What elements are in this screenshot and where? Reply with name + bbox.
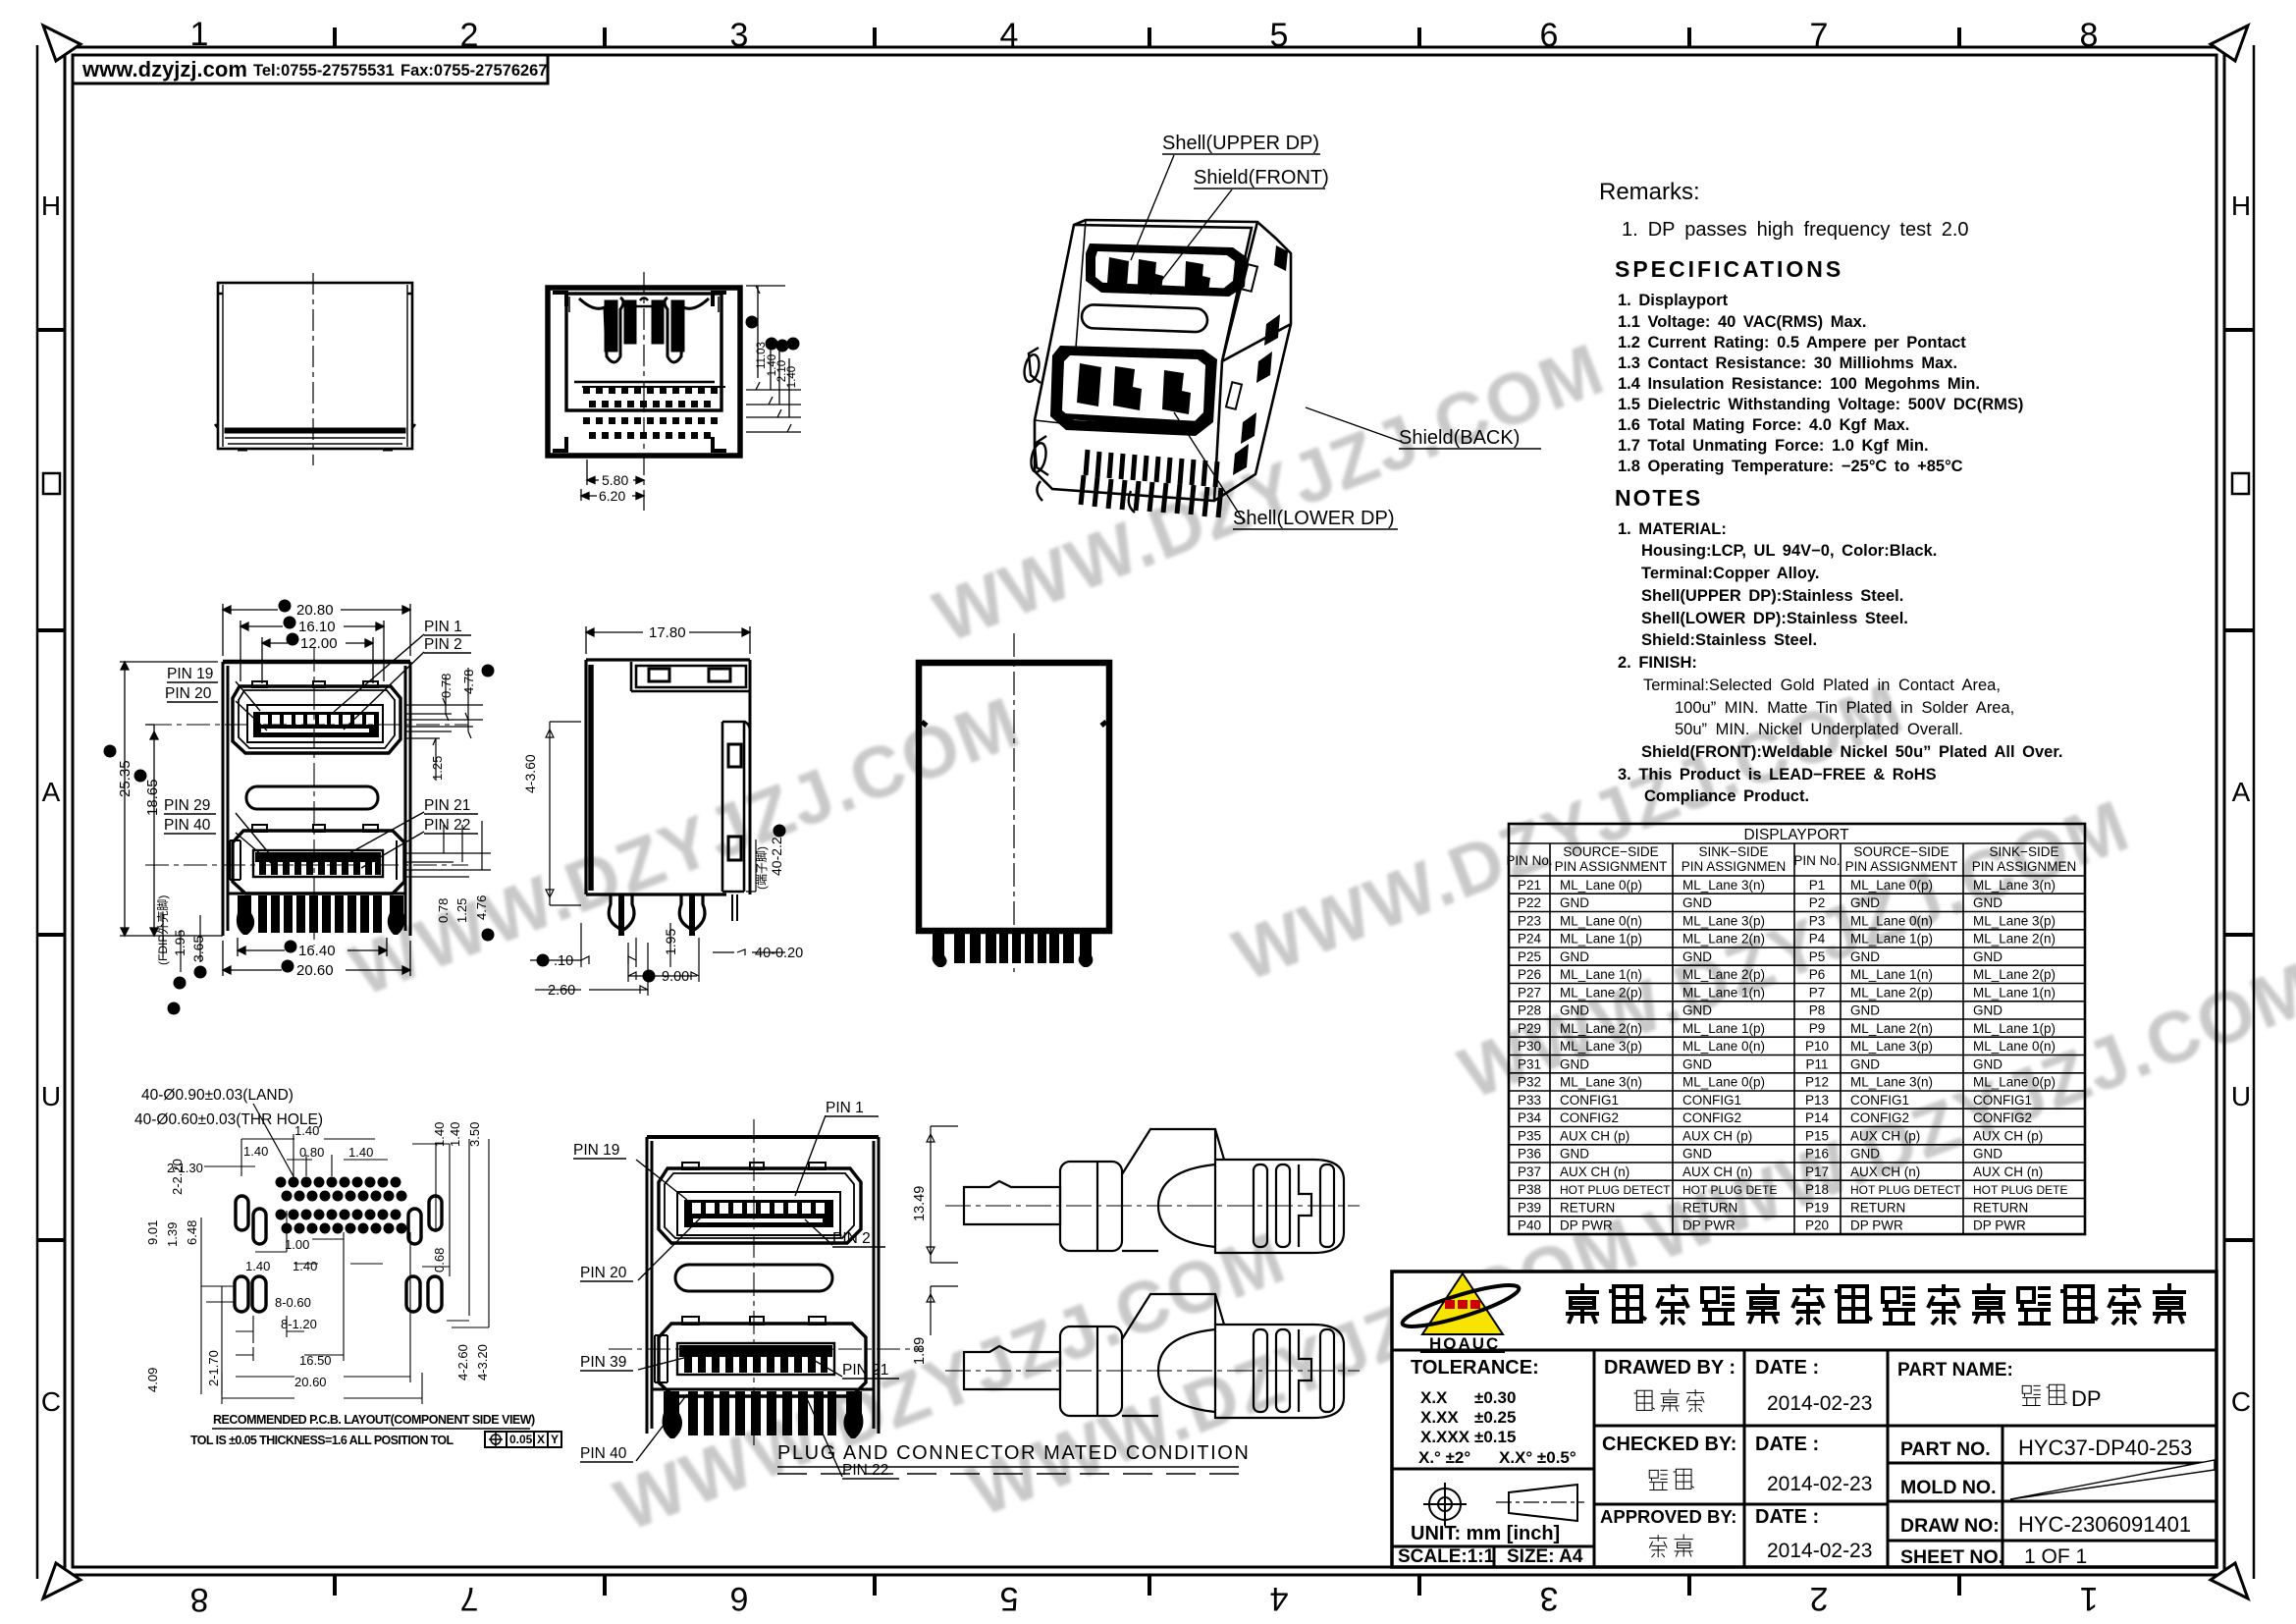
svg-text:H: H [2231,190,2251,221]
svg-text:3: 3 [730,17,749,54]
svg-text:20.60: 20.60 [296,962,334,979]
svg-text:0.80: 0.80 [299,1145,324,1160]
svg-text:1.40: 1.40 [432,1122,447,1147]
svg-text:X.XX: X.XX [1420,1408,1459,1427]
svg-text:ML_Lane 2(n): ML_Lane 2(n) [1682,932,1765,947]
svg-text:ML_Lane 1(p): ML_Lane 1(p) [1850,932,1933,947]
svg-text:PART NAME:: PART NAME: [1897,1360,2013,1380]
svg-text:1.8 Operating Temperature: −25: 1.8 Operating Temperature: −25°C to +85°… [1618,458,1963,475]
svg-text:P31: P31 [1518,1056,1541,1071]
svg-text:AUX CH (p): AUX CH (p) [1560,1128,1629,1143]
svg-text:Y: Y [551,1433,559,1446]
svg-text:P28: P28 [1518,1003,1541,1018]
svg-text:PIN ASSIGNMENT: PIN ASSIGNMENT [1845,859,1958,874]
svg-text:ML_Lane 2(p): ML_Lane 2(p) [1850,985,1933,1000]
svg-text:GND: GND [1850,1003,1880,1018]
svg-text:ML_Lane 0(p): ML_Lane 0(p) [1682,1075,1765,1090]
svg-text:1.40: 1.40 [294,1123,319,1138]
svg-text:ML_Lane 1(n): ML_Lane 1(n) [1973,985,2056,1000]
svg-text:SPECIFICATIONS: SPECIFICATIONS [1615,256,1843,282]
svg-text:ML_Lane 3(p): ML_Lane 3(p) [1560,1039,1642,1054]
svg-text:CONFIG1: CONFIG1 [1560,1093,1619,1108]
svg-text:17.80: 17.80 [649,624,686,641]
svg-text:P37: P37 [1518,1164,1541,1179]
svg-text:40-Ø0.90±0.03(LAND): 40-Ø0.90±0.03(LAND) [141,1087,294,1104]
svg-text:2. FINISH:: 2. FINISH: [1618,654,1697,672]
svg-text:8-1.20: 8-1.20 [281,1317,317,1331]
svg-text:ML_Lane 2(n): ML_Lane 2(n) [1560,1021,1642,1036]
svg-text:NOTES: NOTES [1615,485,1702,511]
svg-text:X.XXX: X.XXX [1420,1428,1470,1446]
svg-text:DATE :: DATE : [1755,1434,1819,1455]
svg-text:1.40: 1.40 [243,1144,268,1159]
svg-text:7: 7 [1810,17,1829,54]
svg-text:PIN No.: PIN No. [1506,853,1552,868]
svg-text:ML_Lane 1(n): ML_Lane 1(n) [1560,967,1642,982]
svg-text:1: 1 [190,16,209,53]
svg-text:1.1 Voltage: 40 VAC(RMS) Max.: 1.1 Voltage: 40 VAC(RMS) Max. [1618,313,1866,331]
svg-text:PIN 22: PIN 22 [842,1462,888,1479]
svg-text:100u” MIN. Matte Tin Plated in: 100u” MIN. Matte Tin Plated in Solder Ar… [1675,699,2014,717]
svg-text:2014-02-23: 2014-02-23 [1767,1540,1872,1562]
svg-text:1.89: 1.89 [912,1337,928,1365]
svg-text:GND: GND [1850,1147,1880,1162]
svg-text:UNIT: mm [inch]: UNIT: mm [inch] [1411,1523,1560,1544]
svg-text:P22: P22 [1518,895,1541,910]
svg-text:AUX CH (n): AUX CH (n) [1973,1164,2043,1179]
svg-text:1.00: 1.00 [285,1237,309,1252]
svg-text:P19: P19 [1805,1200,1829,1215]
svg-text:16.10: 16.10 [298,619,336,635]
svg-text:P13: P13 [1805,1093,1829,1108]
svg-text:DP: DP [2071,1386,2102,1411]
svg-text:GND: GND [1973,895,2002,910]
svg-text:Terminal:Selected Gold Plated: Terminal:Selected Gold Plated in Contact… [1643,677,2001,694]
svg-text:P20: P20 [1805,1218,1829,1233]
svg-text:H: H [41,190,61,221]
svg-text:P38: P38 [1518,1182,1541,1197]
svg-text:DP PWR: DP PWR [1682,1218,1735,1233]
svg-text:GND: GND [1560,895,1589,910]
svg-text:Terminal:Copper Alloy.: Terminal:Copper Alloy. [1641,565,1819,582]
svg-text:1.40: 1.40 [448,1122,462,1147]
svg-text:AUX CH (n): AUX CH (n) [1682,1164,1752,1179]
svg-text:DP PWR: DP PWR [1973,1218,2026,1233]
svg-text:GND: GND [1682,1056,1712,1071]
svg-text:DP PWR: DP PWR [1560,1218,1613,1233]
svg-text:1.95: 1.95 [172,930,187,956]
svg-text:1. MATERIAL:: 1. MATERIAL: [1618,520,1727,538]
svg-text:GND: GND [1560,1147,1589,1162]
svg-text:6.48: 6.48 [185,1220,199,1245]
svg-text:ML_Lane 0(n): ML_Lane 0(n) [1560,913,1642,928]
svg-text:3: 3 [1540,1580,1559,1617]
svg-text:Shield(BACK): Shield(BACK) [1399,427,1520,449]
svg-text:4: 4 [1270,1580,1289,1617]
svg-text:Shell(LOWER DP): Shell(LOWER DP) [1233,508,1394,529]
svg-text:PIN 2: PIN 2 [832,1230,871,1247]
svg-text:GND: GND [1682,1003,1712,1018]
svg-text:MOLD NO.: MOLD NO. [1900,1477,1997,1498]
svg-text:TOLERANCE:: TOLERANCE: [1411,1357,1539,1379]
svg-text:1.3 Contact Resistance: 30 Mil: 1.3 Contact Resistance: 30 Milliohms Max… [1618,354,1957,372]
svg-text:Shield:Stainless Steel.: Shield:Stainless Steel. [1641,631,1817,649]
svg-text:1.6 Total Mating Force: 4.0 Kg: 1.6 Total Mating Force: 4.0 Kgf Max. [1618,416,1909,434]
svg-text:www.dzyjzj.com: www.dzyjzj.com [81,57,247,81]
svg-text:ML_Lane 3(n): ML_Lane 3(n) [1850,1075,1933,1090]
svg-text:2: 2 [460,17,479,54]
svg-text:ML_Lane 2(n): ML_Lane 2(n) [1850,1021,1933,1036]
svg-text:P15: P15 [1805,1128,1829,1143]
svg-text:ML_Lane 0(n): ML_Lane 0(n) [1973,1039,2056,1054]
svg-text:5: 5 [1270,17,1289,54]
svg-text:DP PWR: DP PWR [1850,1218,1903,1233]
svg-text:Shield(FRONT):Weldable Nickel: Shield(FRONT):Weldable Nickel 50u” Plate… [1641,743,2062,761]
svg-text:ML_Lane 3(p): ML_Lane 3(p) [1682,913,1765,928]
svg-text:PIN 2: PIN 2 [424,636,462,653]
svg-text:SIZE: A4: SIZE: A4 [1507,1546,1583,1567]
svg-text:9.00: 9.00 [662,969,689,985]
svg-text:1.25: 1.25 [430,756,445,781]
svg-text:ML_Lane 3(n): ML_Lane 3(n) [1682,878,1765,893]
svg-text:ML_Lane 0(p): ML_Lane 0(p) [1560,878,1642,893]
svg-text:5.80: 5.80 [602,472,628,488]
svg-text:P34: P34 [1518,1110,1542,1125]
svg-text:DRAWED BY :: DRAWED BY : [1604,1357,1735,1379]
svg-text:X: X [537,1433,545,1446]
svg-text:4-3.60: 4-3.60 [522,754,538,793]
svg-text:4.78: 4.78 [461,670,476,694]
svg-text:CONFIG2: CONFIG2 [1850,1110,1909,1125]
svg-text:ML_Lane 1(p): ML_Lane 1(p) [1560,932,1642,947]
svg-text:2.60: 2.60 [548,983,575,999]
svg-text:U: U [41,1081,61,1111]
svg-text:PIN 1: PIN 1 [826,1100,864,1116]
svg-text:50u” MIN. Nickel Underplated O: 50u” MIN. Nickel Underplated Overall. [1675,721,1963,738]
svg-text:6: 6 [730,1580,749,1617]
svg-text:GND: GND [1682,949,1712,964]
svg-text:GND: GND [1560,1003,1589,1018]
svg-text:1.40: 1.40 [245,1259,270,1273]
svg-text:PIN 29: PIN 29 [164,797,210,814]
svg-text:P14: P14 [1805,1110,1830,1125]
svg-text:2014-02-23: 2014-02-23 [1767,1392,1872,1415]
svg-text:1.39: 1.39 [165,1222,180,1247]
svg-text:0.05: 0.05 [509,1433,533,1446]
svg-text:DISPLAYPORT: DISPLAYPORT [1743,827,1849,843]
svg-text:SOURCE−SIDE: SOURCE−SIDE [1563,844,1658,859]
svg-text:HYC37-DP40-253: HYC37-DP40-253 [2018,1435,2192,1460]
svg-text:P7: P7 [1809,985,1826,1000]
svg-text:P24: P24 [1518,932,1542,947]
svg-text:1.95: 1.95 [663,929,678,955]
svg-text:Shell(UPPER DP):Stainless Stee: Shell(UPPER DP):Stainless Steel. [1641,587,1903,605]
svg-text:C: C [41,1386,61,1417]
svg-text:DATE :: DATE : [1755,1506,1819,1528]
svg-text:Housing:LCP, UL 94V−0, Color:B: Housing:LCP, UL 94V−0, Color:Black. [1641,542,1937,560]
svg-text:P6: P6 [1809,967,1826,982]
svg-text:X.X° ±0.5°: X.X° ±0.5° [1499,1448,1576,1467]
svg-text:1.40: 1.40 [786,366,798,388]
svg-text:PIN 40: PIN 40 [580,1445,627,1462]
svg-text:P2: P2 [1809,895,1826,910]
svg-text:PIN ASSIGNMEN: PIN ASSIGNMEN [1972,859,2077,874]
svg-text:AUX CH (p): AUX CH (p) [1850,1128,1920,1143]
svg-text:TOL IS ±0.05 THICKNESS=1.6 ALL: TOL IS ±0.05 THICKNESS=1.6 ALL POSITION … [190,1434,454,1447]
svg-text:8-0.60: 8-0.60 [275,1295,311,1310]
svg-text:ML_Lane 0(n): ML_Lane 0(n) [1850,913,1933,928]
svg-text:PIN 1: PIN 1 [424,619,462,635]
svg-text:PIN 19: PIN 19 [167,666,213,682]
svg-text:1.40: 1.40 [348,1145,373,1160]
svg-text:1.25: 1.25 [454,898,469,923]
svg-text:RETURN: RETURN [1850,1200,1905,1215]
svg-text:±0.15: ±0.15 [1474,1428,1516,1446]
svg-text:SCALE:1:1: SCALE:1:1 [1398,1546,1495,1567]
svg-text:3.50: 3.50 [467,1122,482,1147]
svg-text:2014-02-23: 2014-02-23 [1767,1473,1872,1495]
svg-text:GND: GND [1850,1056,1880,1071]
svg-text:25.35: 25.35 [117,760,133,797]
svg-text:ML_Lane 0(n): ML_Lane 0(n) [1682,1039,1765,1054]
svg-text:P9: P9 [1809,1021,1826,1036]
svg-text:Fax:0755-27576267: Fax:0755-27576267 [400,62,548,80]
svg-text:A: A [42,777,61,807]
svg-text:3. This Product is LEAD−FREE &: 3. This Product is LEAD−FREE & RoHS [1618,766,1937,784]
svg-text:Shell(UPPER DP): Shell(UPPER DP) [1162,133,1319,154]
svg-text:GND: GND [1682,1147,1712,1162]
svg-text:P40: P40 [1518,1218,1541,1233]
svg-text:SINK−SIDE: SINK−SIDE [1990,844,2059,859]
svg-text:P23: P23 [1518,913,1541,928]
svg-text:8: 8 [190,1581,209,1618]
svg-text:PIN ASSIGNMEN: PIN ASSIGNMEN [1682,859,1787,874]
svg-text:AUX CH (p): AUX CH (p) [1973,1128,2043,1143]
svg-text:ML_Lane 2(p): ML_Lane 2(p) [1682,967,1765,982]
svg-text:HOAUC: HOAUC [1429,1334,1500,1353]
svg-text:P29: P29 [1518,1021,1541,1036]
svg-text:U: U [2231,1081,2251,1111]
svg-text:CONFIG1: CONFIG1 [1850,1093,1909,1108]
svg-text:6: 6 [1540,17,1559,54]
svg-text:P21: P21 [1518,878,1541,893]
svg-text:PIN 20: PIN 20 [580,1265,627,1281]
svg-text:P36: P36 [1518,1147,1541,1162]
svg-text:X.° ±2°: X.° ±2° [1418,1448,1470,1467]
svg-text:2: 2 [1810,1580,1829,1617]
svg-text:HYC-2306091401: HYC-2306091401 [2018,1512,2191,1537]
svg-text:8: 8 [2080,17,2099,54]
svg-text:P33: P33 [1518,1093,1541,1108]
svg-text:6.20: 6.20 [599,488,625,504]
svg-text:.10: .10 [554,953,573,969]
svg-text:RETURN: RETURN [1682,1200,1737,1215]
svg-text:4: 4 [1000,17,1019,54]
svg-text:0.68: 0.68 [432,1248,447,1272]
svg-text:CONFIG1: CONFIG1 [1973,1093,2032,1108]
svg-text:GND: GND [1850,895,1880,910]
svg-text:HOT PLUG DETE: HOT PLUG DETE [1682,1183,1777,1197]
svg-text:Tel:0755-27575531: Tel:0755-27575531 [253,62,395,80]
svg-text:9.01: 9.01 [145,1220,160,1245]
svg-text:1. Displayport: 1. Displayport [1618,292,1729,309]
svg-text:GND: GND [1973,1003,2002,1018]
svg-text:CONFIG1: CONFIG1 [1682,1093,1741,1108]
svg-text:P12: P12 [1805,1075,1829,1090]
svg-text:P32: P32 [1518,1075,1541,1090]
svg-text:CHECKED BY:: CHECKED BY: [1602,1434,1736,1455]
svg-text:Compliance Product.: Compliance Product. [1644,787,1809,805]
svg-text:0.78: 0.78 [436,898,451,923]
svg-text:ML_Lane 1(n): ML_Lane 1(n) [1850,967,1933,982]
svg-text:GND: GND [1682,895,1712,910]
svg-text:PIN 21: PIN 21 [424,797,470,814]
svg-text:SINK−SIDE: SINK−SIDE [1699,844,1769,859]
svg-text:CONFIG2: CONFIG2 [1560,1110,1619,1125]
svg-text:ML_Lane 0(p): ML_Lane 0(p) [1973,1075,2056,1090]
svg-text:5: 5 [1000,1580,1019,1617]
svg-text:12.00: 12.00 [300,635,338,652]
svg-text:20.80: 20.80 [296,602,334,619]
svg-text:PIN No.: PIN No. [1793,853,1840,868]
svg-text:SOURCE−SIDE: SOURCE−SIDE [1853,844,1949,859]
svg-text:GND: GND [1560,949,1589,964]
svg-text:P26: P26 [1518,967,1541,982]
svg-text:RETURN: RETURN [1560,1200,1615,1215]
svg-text:P10: P10 [1805,1039,1829,1054]
svg-text:HOT PLUG DETE: HOT PLUG DETE [1973,1183,2067,1197]
svg-text:40-2.2: 40-2.2 [769,837,784,876]
svg-text:A: A [2232,777,2251,807]
svg-text:GND: GND [1850,949,1880,964]
svg-text:Shield(FRONT): Shield(FRONT) [1194,167,1329,189]
svg-text:±0.30: ±0.30 [1474,1388,1516,1407]
svg-text:P16: P16 [1805,1147,1829,1162]
svg-text:PART NO.: PART NO. [1900,1438,1991,1460]
svg-text:GND: GND [1973,1147,2002,1162]
svg-text:X.X: X.X [1420,1388,1448,1407]
svg-text:3.65: 3.65 [190,936,206,962]
svg-text:DRAW NO:: DRAW NO: [1900,1515,2000,1537]
svg-text:1.7 Total Unmating Force: 1.0: 1.7 Total Unmating Force: 1.0 Kgf Min. [1618,437,1929,455]
svg-text:4.76: 4.76 [474,895,489,920]
svg-text:CONFIG2: CONFIG2 [1682,1110,1741,1125]
svg-text:P11: P11 [1805,1056,1828,1071]
svg-text:P17: P17 [1805,1164,1829,1179]
svg-text:P35: P35 [1518,1128,1541,1143]
svg-text:RECOMMENDED P.C.B. LAYOUT(COMP: RECOMMENDED P.C.B. LAYOUT(COMPONENT SIDE… [213,1413,535,1427]
svg-text:ML_Lane 3(p): ML_Lane 3(p) [1850,1039,1933,1054]
svg-text:2-2.20: 2-2.20 [170,1159,185,1195]
svg-text:20.60: 20.60 [294,1375,327,1389]
svg-text:PIN 40: PIN 40 [164,817,211,834]
svg-text:2-1.70: 2-1.70 [206,1350,221,1386]
svg-text:PIN 20: PIN 20 [165,685,212,702]
svg-text:RETURN: RETURN [1973,1200,2028,1215]
svg-text:ML_Lane 3(n): ML_Lane 3(n) [1560,1075,1642,1090]
svg-text:AUX CH (n): AUX CH (n) [1850,1164,1920,1179]
svg-text:AUX CH (n): AUX CH (n) [1560,1164,1629,1179]
svg-text:4-3.20: 4-3.20 [475,1344,490,1380]
svg-text:ML_Lane 1(p): ML_Lane 1(p) [1973,1021,2056,1036]
svg-text:ML_Lane 3(p): ML_Lane 3(p) [1973,913,2056,928]
svg-text:AUX CH (p): AUX CH (p) [1682,1128,1752,1143]
svg-text:GND: GND [1973,1056,2002,1071]
svg-text:P39: P39 [1518,1200,1541,1215]
svg-text:13.49: 13.49 [912,1186,928,1221]
svg-text:1.40: 1.40 [293,1259,317,1273]
svg-text:SHEET NO.: SHEET NO. [1900,1546,2003,1568]
svg-text:CONFIG2: CONFIG2 [1973,1110,2032,1125]
svg-text:P1: P1 [1809,878,1826,893]
svg-text:ML_Lane 2(p): ML_Lane 2(p) [1973,967,2056,982]
svg-text:ML_Lane 1(n): ML_Lane 1(n) [1682,985,1765,1000]
svg-text:PIN 21: PIN 21 [842,1362,888,1379]
svg-text:4.09: 4.09 [145,1368,160,1392]
svg-text:P5: P5 [1809,949,1826,964]
svg-text:P30: P30 [1518,1039,1541,1054]
svg-text:P3: P3 [1809,913,1826,928]
svg-text:GND: GND [1560,1056,1589,1071]
svg-text:16.50: 16.50 [299,1353,332,1368]
svg-text:16.40: 16.40 [298,943,336,959]
svg-text:P25: P25 [1518,949,1541,964]
svg-text:ML_Lane 2(p): ML_Lane 2(p) [1560,985,1642,1000]
svg-text:7: 7 [460,1580,479,1617]
svg-text:Shell(LOWER DP):Stainless Stee: Shell(LOWER DP):Stainless Steel. [1641,610,1908,627]
svg-text:P8: P8 [1809,1003,1826,1018]
svg-text:ML_Lane 2(n): ML_Lane 2(n) [1973,932,2056,947]
svg-text:APPROVED BY:: APPROVED BY: [1600,1506,1736,1527]
svg-text:P4: P4 [1809,932,1826,947]
svg-text:PIN ASSIGNMENT: PIN ASSIGNMENT [1555,859,1668,874]
svg-text:40-0.20: 40-0.20 [755,946,803,961]
svg-text:GND: GND [1973,949,2002,964]
svg-text:PIN 19: PIN 19 [573,1142,619,1159]
svg-text:4-2.60: 4-2.60 [455,1344,470,1380]
svg-text:WWW.DZYJZJ.COM: WWW.DZYJZJ.COM [924,327,1615,657]
svg-text:1.5 Dielectric Withstanding Vo: 1.5 Dielectric Withstanding Voltage: 500… [1618,396,2023,413]
svg-text:1 OF 1: 1 OF 1 [2024,1545,2087,1568]
svg-text:HOT PLUG DETECT: HOT PLUG DETECT [1850,1183,1961,1197]
svg-text:HOT PLUG DETECT: HOT PLUG DETECT [1560,1183,1671,1197]
svg-text:P18: P18 [1805,1182,1829,1197]
svg-text:1.4 Insulation Resistance: 100: 1.4 Insulation Resistance: 100 Megohms M… [1618,375,1980,393]
svg-text:18.65: 18.65 [144,779,161,816]
svg-text:±0.25: ±0.25 [1474,1408,1516,1427]
svg-text:1: 1 [2080,1580,2099,1617]
svg-text:1.2 Current Rating: 0.5 Ampere: 1.2 Current Rating: 0.5 Ampere per Ponta… [1618,334,1966,352]
svg-text:C: C [2231,1386,2251,1417]
svg-text:1. DP passes high frequency te: 1. DP passes high frequency test 2.0 [1622,219,1969,241]
svg-text:DATE :: DATE : [1755,1357,1819,1379]
svg-text:ML_Lane 1(p): ML_Lane 1(p) [1682,1021,1765,1036]
svg-text:ML_Lane 0(p): ML_Lane 0(p) [1850,878,1933,893]
svg-text:P27: P27 [1518,985,1541,1000]
svg-text:PLUG AND CONNECTOR MATED CONDI: PLUG AND CONNECTOR MATED CONDITION [777,1442,1250,1464]
svg-text:0.78: 0.78 [439,674,454,698]
svg-text:PIN 22: PIN 22 [424,817,470,834]
svg-text:PIN 39: PIN 39 [580,1354,626,1371]
svg-text:ML_Lane 3(n): ML_Lane 3(n) [1973,878,2056,893]
svg-text:Remarks:: Remarks: [1599,179,1700,205]
